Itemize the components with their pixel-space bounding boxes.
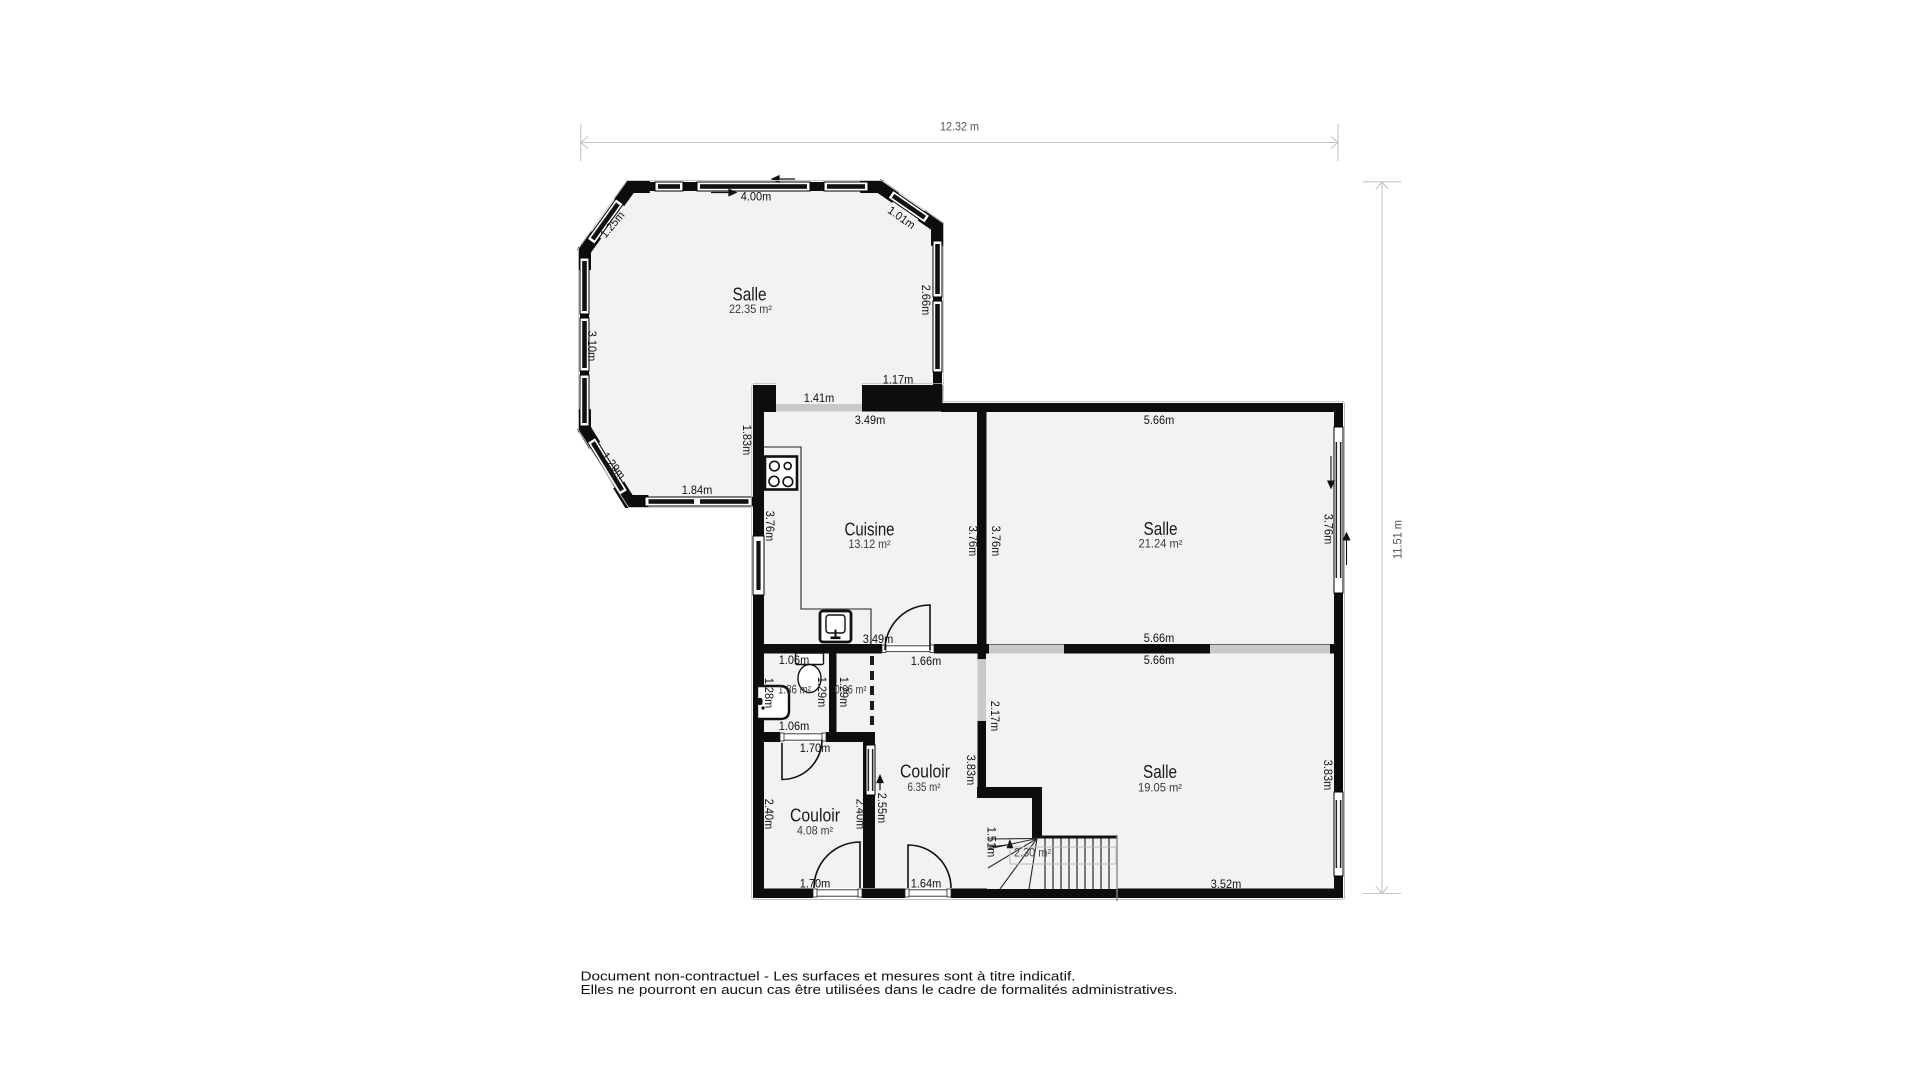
svg-text:1.64m: 1.64m (911, 879, 942, 891)
svg-text:1.41m: 1.41m (804, 393, 835, 405)
svg-text:3.10m: 3.10m (585, 331, 597, 362)
svg-text:1.70m: 1.70m (800, 743, 831, 755)
svg-text:1.06m: 1.06m (779, 721, 810, 733)
svg-text:2.40m: 2.40m (762, 799, 774, 830)
svg-text:11.51 m: 11.51 m (1392, 520, 1404, 559)
svg-text:12.32 m: 12.32 m (940, 122, 979, 134)
svg-text:2.30 m²: 2.30 m² (1014, 848, 1051, 860)
svg-text:5.66m: 5.66m (1144, 415, 1175, 427)
svg-text:1.28m: 1.28m (762, 678, 774, 709)
svg-text:1.70m: 1.70m (800, 879, 831, 891)
svg-text:1.06m: 1.06m (779, 655, 810, 667)
svg-text:4.00m: 4.00m (741, 192, 772, 204)
svg-text:1.29m: 1.29m (837, 677, 849, 708)
svg-text:22.35 m²: 22.35 m² (729, 304, 772, 316)
svg-text:3.76m: 3.76m (1322, 514, 1334, 545)
svg-text:Salle: Salle (733, 285, 767, 305)
svg-text:Couloir: Couloir (790, 806, 840, 826)
svg-text:19.05 m²: 19.05 m² (1138, 783, 1182, 795)
svg-text:2.40m: 2.40m (854, 799, 866, 830)
svg-text:3.76m: 3.76m (989, 526, 1001, 557)
svg-text:3.83m: 3.83m (1321, 760, 1333, 791)
svg-text:2.66m: 2.66m (919, 285, 931, 316)
svg-text:1.83m: 1.83m (740, 425, 752, 456)
svg-text:1.84m: 1.84m (682, 485, 713, 497)
svg-text:13.12 m²: 13.12 m² (849, 539, 891, 551)
svg-text:3.49m: 3.49m (863, 634, 894, 646)
svg-text:1.36 m²: 1.36 m² (778, 685, 811, 697)
svg-text:3.52m: 3.52m (1211, 879, 1242, 891)
svg-text:6.35 m²: 6.35 m² (908, 782, 941, 794)
svg-text:1.17m: 1.17m (883, 375, 914, 387)
svg-text:Salle: Salle (1144, 519, 1178, 539)
svg-text:Elles ne pourront en aucun cas: Elles ne pourront en aucun cas être util… (581, 982, 1178, 997)
svg-text:1.66m: 1.66m (911, 656, 942, 668)
svg-text:4.08 m²: 4.08 m² (797, 826, 833, 838)
svg-text:5.66m: 5.66m (1144, 633, 1175, 645)
svg-text:21.24 m²: 21.24 m² (1139, 539, 1183, 551)
svg-text:2.17m: 2.17m (988, 701, 1000, 732)
svg-text:3.76m: 3.76m (966, 526, 978, 557)
svg-text:Couloir: Couloir (900, 762, 950, 782)
svg-text:Cuisine: Cuisine (845, 520, 895, 540)
svg-text:3.83m: 3.83m (964, 755, 976, 786)
svg-text:Salle: Salle (1143, 762, 1177, 782)
svg-text:3.49m: 3.49m (855, 415, 886, 427)
svg-text:2.55m: 2.55m (875, 793, 887, 824)
svg-text:5.66m: 5.66m (1144, 655, 1175, 667)
svg-text:3.76m: 3.76m (763, 511, 775, 542)
svg-text:1.51m: 1.51m (985, 827, 997, 858)
svg-text:1.29m: 1.29m (815, 677, 827, 708)
